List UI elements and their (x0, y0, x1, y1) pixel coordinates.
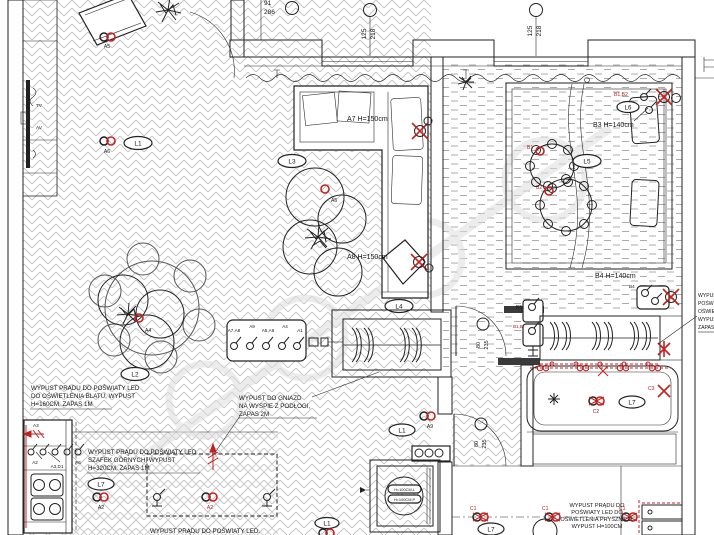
light-label-l2: L2 (121, 368, 149, 381)
note-a8: A8 H=150cm (347, 254, 388, 261)
c3-label: C3 (648, 386, 655, 392)
faucet-icon (548, 393, 560, 405)
l6-text: L6 (625, 105, 632, 112)
light-label-l3: L3 (278, 155, 306, 168)
b4-label: B4 (629, 284, 635, 289)
floor-plan: 91 286 125 218 125 218 TV AV A5 A6 L1 A7… (0, 0, 714, 535)
light-label-l1-hall: L1 (389, 424, 415, 436)
washer-tag2: H=100CM,P (394, 497, 416, 502)
outlet-c2: C2 (589, 397, 604, 415)
b1-label: B1 (527, 145, 533, 151)
washer-tag1: H=100CM,L (394, 487, 416, 492)
note-a7: A7 H=150cm (347, 116, 388, 123)
kitchen-counter (24, 420, 76, 533)
note-shower-line3: OŚWIETLENIA PRYSZNICU, (560, 515, 634, 523)
a3d1-label: A3,D1 (51, 464, 64, 469)
light-label-l1-living: L1 (124, 137, 152, 150)
note-counter-line3: H=160CM, ZAPAS 1M (31, 401, 93, 408)
b2-label: B2 (536, 185, 542, 191)
note-shower-line4: WYPUST H=100CM (572, 524, 623, 530)
outlet-a6-label: A6 (104, 149, 110, 155)
dim-win2-218: 218 (536, 25, 543, 36)
clipped-line2: POŚWIATY (698, 299, 714, 307)
a2-kitchen-label: A2 (98, 505, 104, 511)
clipped-line4: WYPUST (698, 317, 714, 323)
a6-sofa-label: A6 (331, 198, 337, 204)
c2-label: C2 (593, 409, 600, 415)
light-label-l5: L5 (573, 155, 601, 168)
note-island-line3: ZAPAS 2M (239, 411, 269, 418)
dim-91: 91 (264, 0, 272, 7)
wall-point-c3: C3 (648, 385, 670, 397)
clipped-line5: ZAPAS (698, 325, 714, 331)
panel-s5-label: A1 (297, 328, 303, 333)
tv-label: TV (36, 103, 43, 108)
note-cabinets-line2: SZAFEK GÓRNYCH, WYPUST (88, 457, 176, 464)
l1-hall2-text: L1 (323, 521, 331, 528)
a9-label: A9 (427, 424, 433, 430)
a4-label: A4 (145, 328, 151, 334)
bathtub-led-run (530, 365, 672, 376)
l7-bath-text: L7 (628, 400, 636, 407)
bed-door-235: 235 (484, 340, 490, 349)
a2-island-label: A2 (207, 505, 213, 511)
outlet-a5-label: A5 (104, 44, 110, 50)
b5-label: B5 (516, 305, 522, 311)
l7-kitchen-text: L7 (97, 482, 105, 489)
dimension-window-right: 125 218 (527, 4, 543, 57)
c1-a-label: C1 (470, 506, 477, 512)
light-label-l7-bath: L7 (619, 396, 645, 408)
av-label: AV (36, 125, 43, 130)
appliance-outlet-strip (412, 446, 450, 461)
note-bottom-led: WYPUST PRĄDU DO POŚWIATY LED. (150, 527, 260, 535)
l5-text: L5 (583, 159, 591, 166)
dim-win2-125: 125 (527, 25, 534, 36)
panel-s4-label: A4 (282, 324, 288, 329)
note-b4: B4 H=140cm (595, 273, 636, 280)
note-shower-line2: POŚWIATY LED DO (571, 508, 623, 516)
switch-panel: A7,A8 A9 A5,A6 A4 A1 (227, 320, 306, 361)
panel-s3-label: A5,A6 (262, 328, 275, 333)
hangers-icon (550, 322, 651, 350)
note-b3: B3 H=140cm (593, 122, 634, 129)
dim-win1-218: 218 (370, 28, 377, 39)
b1b2-top-label: B1,B2 (614, 92, 628, 98)
dim-win1-125: 125 (361, 28, 368, 39)
note-counter-line2: DO OŚWIETLENIA BLATU, WYPUST (31, 392, 135, 400)
bedroom-wardrobe (540, 316, 670, 366)
note-island-line2: NA WYSPIE Z PODŁOGI, (239, 403, 310, 410)
a3-label: A3 (33, 423, 39, 428)
c1-b-label: C1 (542, 506, 549, 512)
light-label-l7-kitchen: L7 (88, 478, 114, 490)
ceiling-fixture (533, 519, 557, 535)
a2-kitchen-wall-label: A2 (32, 460, 38, 465)
bed-door-80: 80 (476, 342, 482, 348)
light-label-l4: L4 (385, 300, 413, 313)
clipped-line1: WYPUST (698, 293, 714, 299)
clipped-line3: OŚWIETLENIA (698, 307, 714, 315)
panel-s1-label: A7,A8 (228, 328, 241, 333)
dim-286: 286 (264, 9, 275, 16)
note-shower-line1: WYPUST PRĄDU DO (570, 503, 626, 509)
note-counter-line1: WYPUST PRĄDU DO POŚWIATY LED (31, 384, 140, 392)
note-island-line1: WYPUST DO GNIAZD (239, 395, 302, 402)
panel-s2-label: A9 (249, 324, 255, 329)
l1-hall-text: L1 (398, 428, 406, 435)
bath-door-80: 80 (474, 441, 480, 447)
note-shower-led: WYPUST PRĄDU DO POŚWIATY LED DO OŚWIETLE… (560, 503, 634, 530)
l4-text: L4 (395, 304, 403, 311)
utility-closet (639, 500, 682, 535)
bath-door-235: 235 (482, 439, 488, 448)
l1-living-text: L1 (134, 141, 142, 148)
note-cabinets-line3: H=320CM, ZAPAS 1M (88, 465, 150, 472)
l2-text: L2 (131, 372, 139, 379)
light-label-l7-shower: L7 (478, 523, 504, 535)
l7-shower-text: L7 (487, 527, 495, 534)
floor-plan-drawing: 91 286 125 218 125 218 TV AV A5 A6 L1 A7… (0, 0, 714, 535)
a6-kitchen-label: A6 (75, 460, 81, 465)
outlet-c1-a: C1 (470, 506, 488, 521)
l3-text: L3 (288, 159, 296, 166)
note-cabinets-line1: WYPUST PRĄDU DO POŚWIATY LED (88, 448, 197, 456)
